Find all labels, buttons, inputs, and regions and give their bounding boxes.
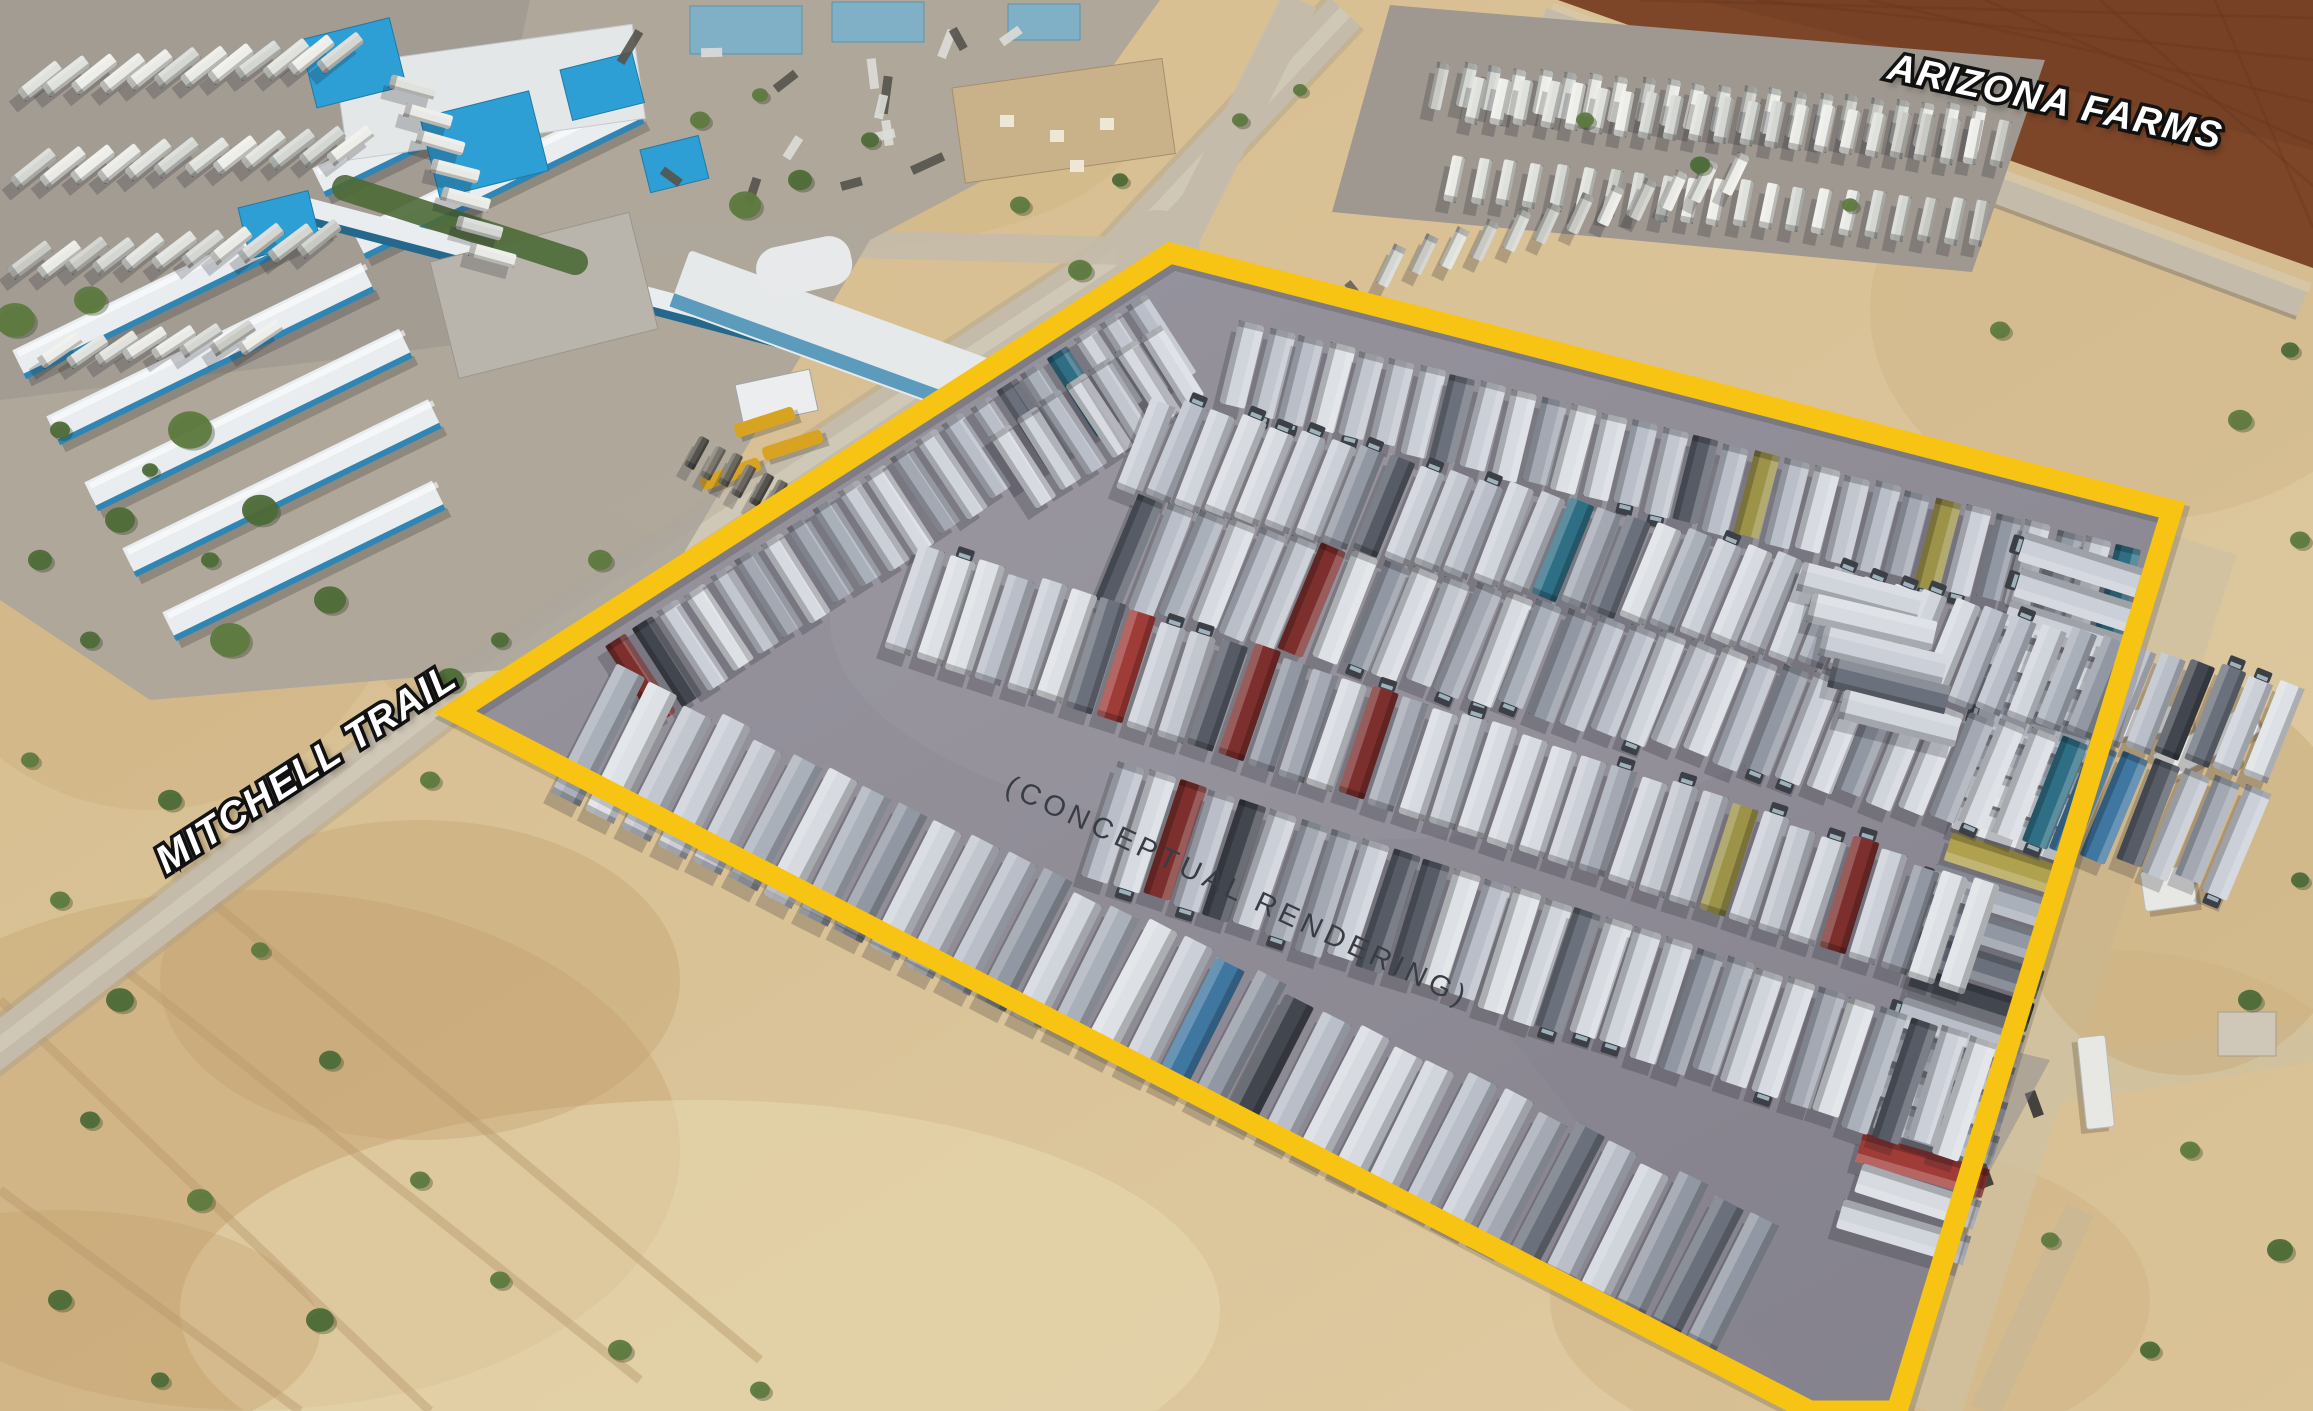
aerial-site-plan: ARIZONA FARMS MITCHELL TRAIL (CONCEPTUAL…: [0, 0, 2313, 1411]
aerial-photo-canvas: [0, 0, 2313, 1411]
